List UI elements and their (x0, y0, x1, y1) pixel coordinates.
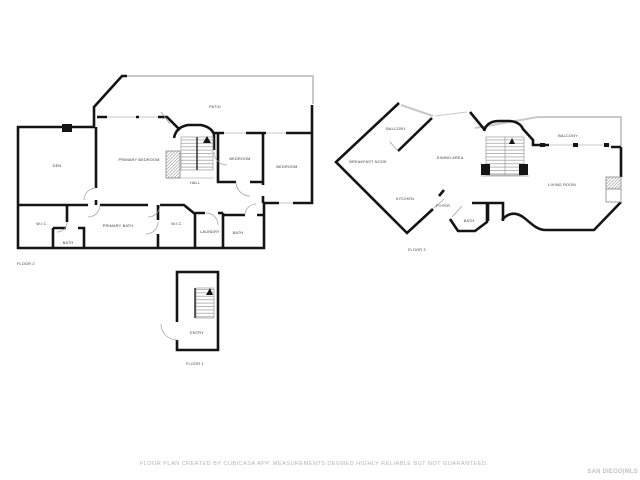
floor3-door-swings (390, 142, 462, 217)
floorplan-svg: DEN PRIMARY BEDROOM PATIO HALL BEDROOM B… (0, 0, 640, 480)
room-label-kitchen: KITCHEN (396, 196, 414, 201)
floor2-plan: DEN PRIMARY BEDROOM PATIO HALL BEDROOM B… (17, 76, 313, 266)
room-label-wic-left: W.I.C. (36, 221, 48, 226)
floor3-fireplace-hatch (606, 177, 621, 189)
floor2-interior-walls (18, 117, 312, 248)
room-label-bath-right: BATH (233, 230, 244, 235)
floor1-entry-door-swing (161, 324, 177, 340)
room-label-balcony-left: BALCONY (386, 126, 406, 131)
floor3-window-post-2 (573, 143, 578, 147)
mls-watermark: SAN DIEGO|MLS (587, 469, 638, 475)
floor3-window-post-3 (604, 143, 609, 147)
room-label-laundry: LAUNDRY (200, 229, 220, 234)
floor3-bath-foyer-walls (450, 203, 503, 231)
room-label-entry: ENTRY (190, 330, 204, 335)
room-label-primary-bedroom: PRIMARY BEDROOM (118, 157, 159, 162)
floor2-outer-walls (18, 76, 312, 248)
room-label-bath: BATH (464, 218, 475, 223)
room-label-breakfast-nook: BREAKFAST NOOK (349, 159, 387, 164)
room-label-patio: PATIO (209, 104, 221, 109)
floor2-den-fireplace (62, 124, 72, 132)
floorplan-canvas: DEN PRIMARY BEDROOM PATIO HALL BEDROOM B… (0, 0, 640, 480)
room-label-balcony-right: BALCONY (558, 133, 578, 138)
floor3-outer-walls (336, 103, 621, 233)
floor3-stair-post-left (481, 164, 490, 175)
room-label-bedroom-mid: BEDROOM (229, 156, 250, 161)
room-label-living-room: LIVING ROOM (548, 182, 576, 187)
floor3-stair-post-right (519, 164, 528, 175)
footer: FLOOR PLAN CREATED BY CUBICASA APP. MEAS… (140, 461, 638, 475)
floor1-plan: ENTRY FLOOR 1 (161, 272, 218, 366)
floor2-label: FLOOR 2 (17, 261, 35, 266)
floor3-fireplace-base (606, 189, 621, 202)
disclaimer-text: FLOOR PLAN CREATED BY CUBICASA APP. MEAS… (140, 461, 489, 467)
floor3-plan: BALCONY BREAKFAST NOOK DINING AREA KITCH… (336, 103, 621, 252)
floor2-stairs-hatch (166, 151, 180, 178)
room-label-den: DEN (53, 163, 62, 168)
room-label-hall: HALL (190, 180, 201, 185)
room-label-foyer: FOYER (436, 203, 450, 208)
floor3-label: FLOOR 3 (408, 247, 426, 252)
room-label-primary-bath: PRIMARY BATH (103, 223, 134, 228)
room-label-bedroom-right: BEDROOM (276, 164, 297, 169)
room-label-wic-right: W.I.C. (171, 221, 183, 226)
floor2-patio-boundary (125, 76, 313, 104)
room-label-dining-area: DINING AREA (437, 155, 464, 160)
floor3-window-post-1 (540, 143, 545, 147)
room-label-bath-left: BATH (63, 240, 74, 245)
floor1-label: FLOOR 1 (186, 361, 204, 366)
